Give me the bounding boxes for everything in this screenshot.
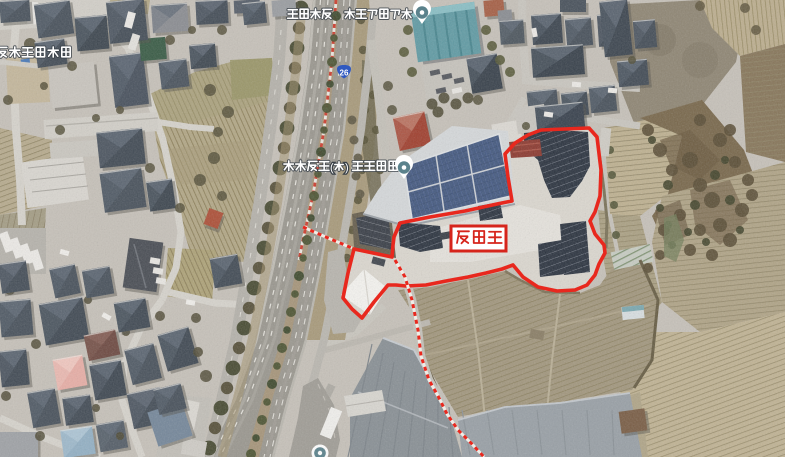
svg-text:26: 26 — [340, 69, 349, 78]
svg-text:): ) — [345, 162, 349, 174]
